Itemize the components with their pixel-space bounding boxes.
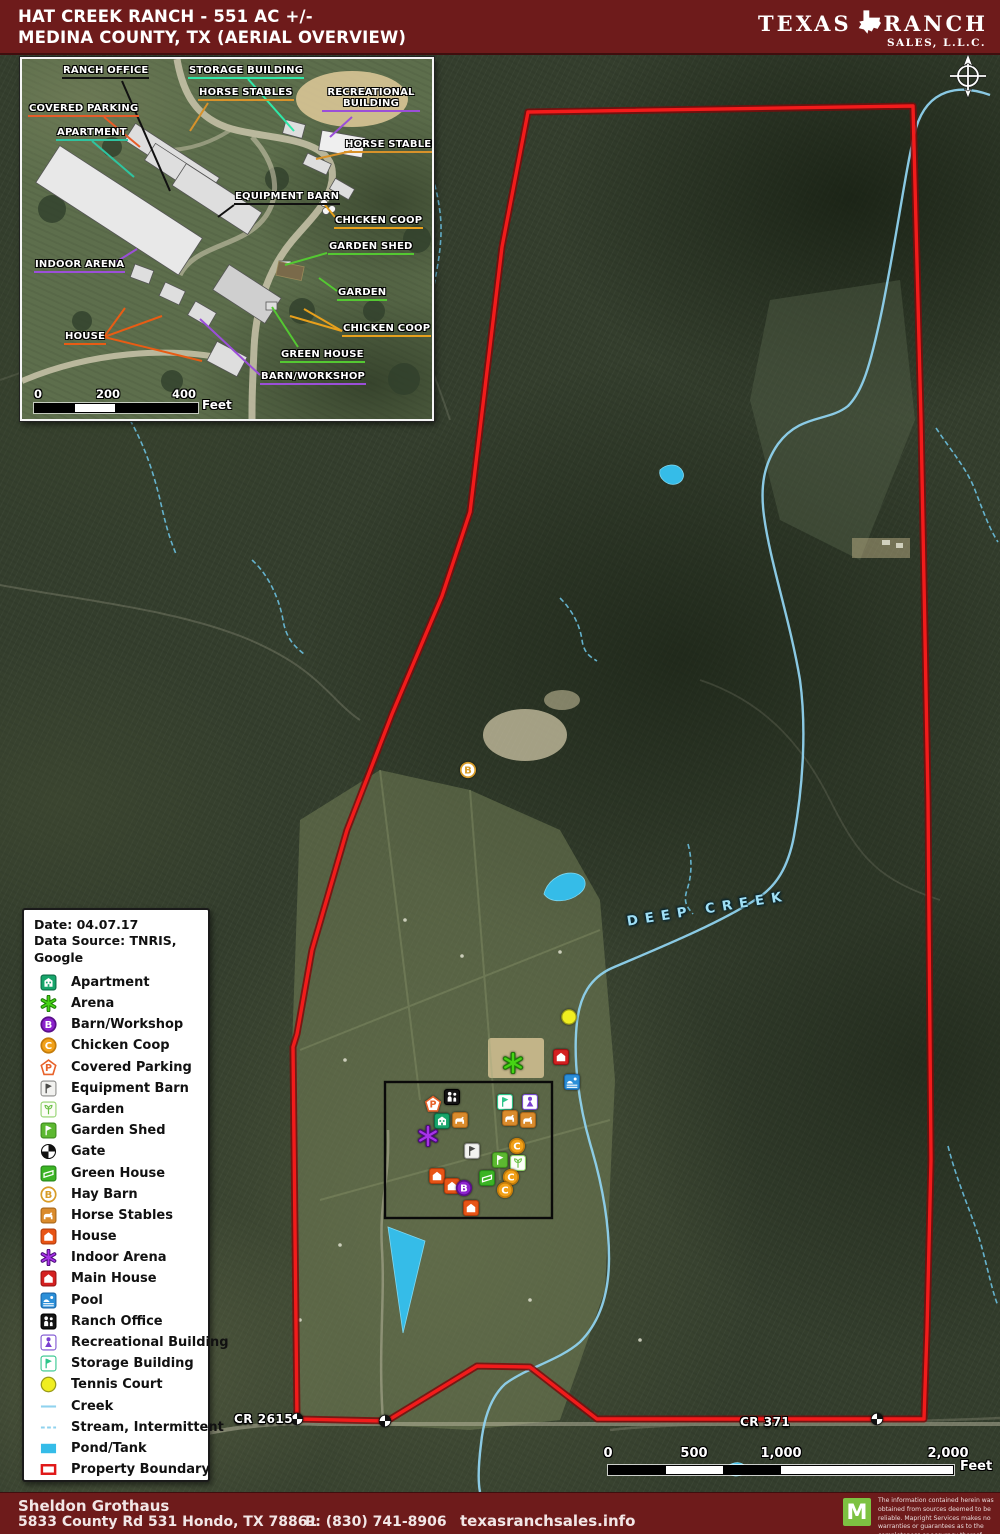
legend-item: Creek <box>34 1396 208 1417</box>
legend-item: Horse Stables <box>34 1205 208 1226</box>
leader-line <box>290 316 342 331</box>
legend-item-label: Ranch Office <box>71 1314 163 1329</box>
barn-workshop-icon: B <box>40 1016 57 1033</box>
inset-label-garden: GARDEN <box>337 287 387 301</box>
legend-item-label: Garden <box>71 1102 124 1117</box>
inset-label-apartment: APARTMENT <box>56 127 128 141</box>
horse-stables-icon <box>40 1207 57 1224</box>
storage-building-icon <box>40 1355 57 1372</box>
mapright-logo-icon: M <box>843 1498 871 1526</box>
legend-item-label: Main House <box>71 1271 157 1286</box>
scale-tick: 0 <box>603 1446 612 1461</box>
inset-label-horse-stables-right: HORSE STABLES <box>344 139 434 153</box>
legend-item: Gate <box>34 1141 208 1162</box>
legend-item-label: Chicken Coop <box>71 1038 170 1053</box>
scale-unit: Feet <box>202 398 232 412</box>
svg-text:C: C <box>45 1041 52 1052</box>
legend-item: Pool <box>34 1290 208 1311</box>
inset-label-indoor-arena: INDOOR ARENA <box>34 259 125 273</box>
inset-label-horse-stables-top: HORSE STABLES <box>198 87 294 101</box>
inset-map: RANCH OFFICESTORAGE BUILDINGHORSE STABLE… <box>20 57 434 421</box>
apartment-icon <box>40 974 57 991</box>
legend-source: Data Source: TNRIS, Google <box>34 933 208 966</box>
green-house-icon <box>40 1165 57 1182</box>
legend-item-label: Pond/Tank <box>71 1441 147 1456</box>
hay-barn-icon: B <box>40 1186 57 1203</box>
scale-bar-graphic <box>34 403 198 413</box>
legend-item: Property Boundary <box>34 1459 208 1480</box>
legend-item: Green House <box>34 1162 208 1183</box>
legend-item: House <box>34 1226 208 1247</box>
arena-icon <box>40 995 57 1012</box>
inset-label-recreational-building: RECREATIONAL BUILDING <box>322 87 420 112</box>
inset-label-equipment-barn: EQUIPMENT BARN <box>234 191 340 205</box>
legend-item-label: Stream, Intermittent <box>71 1420 224 1435</box>
gate-icon <box>40 1143 57 1160</box>
legend-item: Indoor Arena <box>34 1247 208 1268</box>
legend-item: Arena <box>34 993 208 1014</box>
legend-item: Storage Building <box>34 1353 208 1374</box>
inset-label-garden-shed: GARDEN SHED <box>328 241 414 255</box>
creek-icon <box>40 1398 57 1415</box>
header-bar: HAT CREEK RANCH - 551 AC +/- MEDINA COUN… <box>0 0 1000 55</box>
covered-parking-icon: P <box>40 1059 57 1076</box>
map-scale-bar: 0 500 1,000 2,000 Feet <box>600 1446 995 1480</box>
legend-item-label: Horse Stables <box>71 1208 173 1223</box>
equipment-barn-icon <box>40 1080 57 1097</box>
pool-icon <box>40 1292 57 1309</box>
legend-item: BBarn/Workshop <box>34 1014 208 1035</box>
inset-label-covered-parking: COVERED PARKING <box>28 103 139 117</box>
legend-item: CChicken Coop <box>34 1035 208 1056</box>
legend-item-label: Barn/Workshop <box>71 1017 183 1032</box>
inset-label-chicken-coop-top: CHICKEN COOP <box>334 215 423 229</box>
page-title: HAT CREEK RANCH - 551 AC +/- MEDINA COUN… <box>18 6 406 48</box>
legend-item-label: Garden Shed <box>71 1123 166 1138</box>
legend-item: Tennis Court <box>34 1374 208 1395</box>
legend-item-label: Equipment Barn <box>71 1081 189 1096</box>
inset-label-chicken-coop-lower: CHICKEN COOP <box>342 323 431 337</box>
legend-item: PCovered Parking <box>34 1057 208 1078</box>
scale-bar-graphic <box>608 1465 954 1475</box>
agent-address: 5833 County Rd 531 Hondo, TX 78861 <box>18 1514 317 1530</box>
indoor-arena-icon <box>40 1249 57 1266</box>
legend-item-label: House <box>71 1229 117 1244</box>
legend-item-label: Hay Barn <box>71 1187 138 1202</box>
legend-item: Equipment Barn <box>34 1078 208 1099</box>
legend-item-label: Storage Building <box>71 1356 194 1371</box>
legend-item-label: Property Boundary <box>71 1462 210 1477</box>
tennis-court-icon <box>40 1376 57 1393</box>
disclaimer-text: The information contained herein was obt… <box>878 1497 996 1534</box>
logo-word-texas: TEXAS <box>758 11 852 36</box>
scale-tick: 200 <box>96 387 120 401</box>
stream-icon <box>40 1419 57 1436</box>
recreational-building-icon <box>40 1334 57 1351</box>
logo-word-ranch: RANCH <box>884 11 989 36</box>
legend-item-label: Creek <box>71 1399 113 1414</box>
agent-name: Sheldon Grothaus <box>18 1497 169 1515</box>
garden-icon <box>40 1101 57 1118</box>
scale-tick: 400 <box>172 387 196 401</box>
website: texasranchsales.info <box>460 1512 635 1530</box>
svg-text:B: B <box>45 1020 53 1031</box>
page: BPCCBC DEEP CREEK CR 2615 CR 371 0 500 1… <box>0 0 1000 1534</box>
inset-label-ranch-office: RANCH OFFICE <box>62 65 149 79</box>
leader-line <box>285 253 327 265</box>
footer-bar: Sheldon Grothaus 5833 County Rd 531 Hond… <box>0 1492 1000 1534</box>
legend-item: Recreational Building <box>34 1332 208 1353</box>
agent-phone: P: (830) 741-8906 <box>305 1514 447 1530</box>
field-patches <box>292 280 915 1430</box>
scale-unit: Feet <box>960 1459 992 1474</box>
chicken-coop-icon: C <box>40 1037 57 1054</box>
ranch-office-icon <box>40 1313 57 1330</box>
title-line1: HAT CREEK RANCH - 551 AC +/- <box>18 6 406 27</box>
legend-item-label: Covered Parking <box>71 1060 192 1075</box>
legend-item-label: Green House <box>71 1166 165 1181</box>
inset-label-storage-building: STORAGE BUILDING <box>188 65 304 79</box>
inset-label-green-house: GREEN HOUSE <box>280 349 365 363</box>
legend-items: ApartmentArenaBBarn/WorkshopCChicken Coo… <box>34 972 208 1481</box>
legend-item-label: Arena <box>71 996 114 1011</box>
inset-label-house: HOUSE <box>64 331 106 345</box>
scale-tick: 0 <box>34 387 42 401</box>
svg-text:B: B <box>45 1190 53 1201</box>
boundary-icon <box>40 1461 57 1478</box>
legend-item: Apartment <box>34 972 208 993</box>
pond-icon <box>40 1440 57 1457</box>
scale-tick: 1,000 <box>760 1446 801 1461</box>
svg-text:P: P <box>45 1063 52 1074</box>
legend-item-label: Tennis Court <box>71 1377 163 1392</box>
legend-item: BHay Barn <box>34 1184 208 1205</box>
inset-scale-bar: 0 200 400 Feet <box>30 387 250 415</box>
main-house-icon <box>40 1270 57 1287</box>
house-icon <box>40 1228 57 1245</box>
scale-tick: 500 <box>680 1446 707 1461</box>
garden-shed-icon <box>40 1122 57 1139</box>
legend-date: Date: 04.07.17 <box>34 917 208 933</box>
legend-item: Garden <box>34 1099 208 1120</box>
legend-item-label: Pool <box>71 1293 103 1308</box>
inset-label-barn-workshop: BARN/WORKSHOP <box>260 371 366 385</box>
legend-item-label: Indoor Arena <box>71 1250 167 1265</box>
legend-item: Garden Shed <box>34 1120 208 1141</box>
company-logo: TEXAS RANCH SALES, L.L.C. <box>758 3 988 49</box>
texas-icon <box>854 3 882 43</box>
leader-line <box>319 278 337 291</box>
legend-item: Main House <box>34 1268 208 1289</box>
road-label-cr371: CR 371 <box>740 1415 790 1429</box>
legend-item-label: Gate <box>71 1144 105 1159</box>
road-label-cr2615: CR 2615 <box>234 1412 293 1426</box>
legend-item: Ranch Office <box>34 1311 208 1332</box>
legend-item-label: Recreational Building <box>71 1335 229 1350</box>
legend-item-label: Apartment <box>71 975 150 990</box>
title-line2: MEDINA COUNTY, TX (AERIAL OVERVIEW) <box>18 27 406 48</box>
legend-item: Pond/Tank <box>34 1438 208 1459</box>
legend-item: Stream, Intermittent <box>34 1417 208 1438</box>
legend-panel: Date: 04.07.17 Data Source: TNRIS, Googl… <box>22 908 210 1482</box>
